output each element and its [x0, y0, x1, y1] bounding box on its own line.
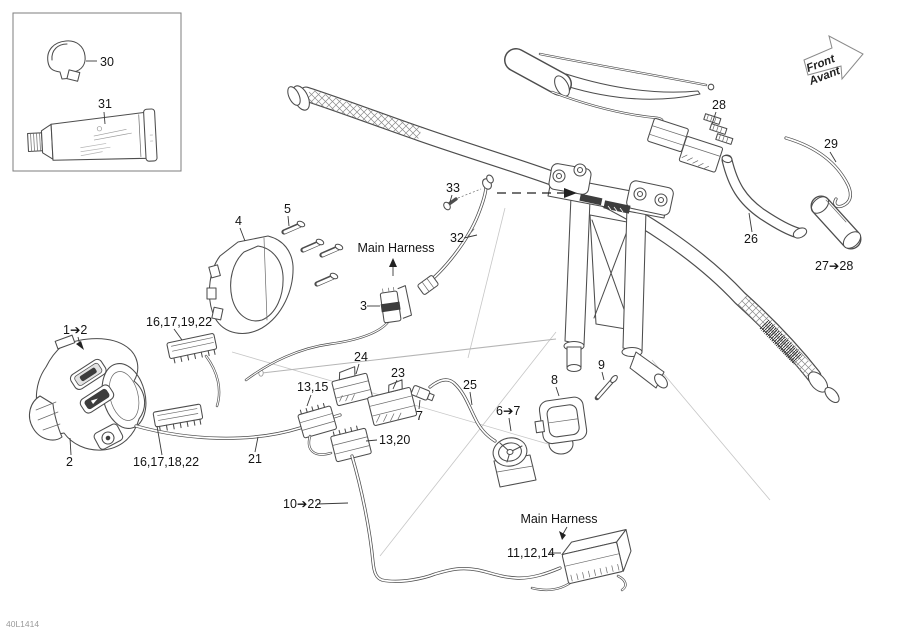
pin-strips-28 — [704, 114, 733, 145]
callout-16-17-18-22: 16,17,18,22 — [133, 455, 199, 469]
diagram-canvas: Main Harness — [0, 0, 900, 636]
callout-16-17-19-22: 16,17,19,22 — [146, 315, 212, 329]
doc-code: 40L1414 — [6, 619, 39, 629]
connector-13-15 — [297, 402, 337, 455]
callout-25: 25 — [463, 378, 477, 392]
callout-1-2: 1➔2 — [63, 323, 87, 337]
main-harness-callout-top: Main Harness — [357, 241, 434, 276]
screw-9 — [597, 374, 619, 398]
connector-24 — [329, 364, 372, 406]
leader-lines — [70, 112, 836, 553]
connector-16-17-19-22 — [167, 333, 219, 406]
main-harness-callout-bottom: Main Harness — [520, 512, 597, 540]
callout-29: 29 — [824, 137, 838, 151]
cap-30 — [48, 41, 85, 81]
dial-switch-6-7 — [490, 435, 536, 487]
connector-16-17-18-22 — [153, 404, 204, 432]
callout-33: 33 — [446, 181, 460, 195]
inset-box: 30 31 — [13, 13, 181, 171]
callout-23: 23 — [391, 366, 405, 380]
install-direction-arrow — [497, 188, 577, 198]
callout-4: 4 — [235, 214, 242, 228]
callout-11-12-14: 11,12,14 — [507, 546, 555, 560]
callout-9: 9 — [598, 358, 605, 372]
callout-6-7: 6➔7 — [496, 404, 520, 418]
callout-2: 2 — [66, 455, 73, 469]
housing-4 — [207, 236, 293, 333]
callout-27-28: 27➔28 — [815, 259, 853, 273]
front-direction-arrow: Front Avant — [802, 36, 863, 88]
callout-13-20: 13,20 — [379, 433, 410, 447]
main-harness-top-label: Main Harness — [357, 241, 434, 255]
callout-10-22: 10➔22 — [283, 497, 321, 511]
callout-3: 3 — [360, 299, 367, 313]
callout-31: 31 — [98, 97, 112, 111]
left-grip — [285, 83, 420, 134]
steering-wiring-harness-diagram: Main Harness — [0, 0, 900, 636]
callout-13-15: 13,15 — [297, 380, 328, 394]
switch-8 — [532, 396, 587, 454]
callout-5: 5 — [284, 202, 291, 216]
callout-8: 8 — [551, 373, 558, 387]
callout-26: 26 — [744, 232, 758, 246]
connector-pair-28 — [647, 114, 733, 173]
callout-30: 30 — [100, 55, 114, 69]
callout-21: 21 — [248, 452, 262, 466]
callout-labels: 28 29 26 27➔28 33 32 3 4 5 1➔2 2 16,17,1… — [63, 98, 853, 560]
brake-lever-assembly — [516, 54, 714, 122]
callout-32: 32 — [450, 231, 464, 245]
connector-23 — [365, 378, 417, 426]
steering-riser — [548, 163, 674, 391]
callout-28: 28 — [712, 98, 726, 112]
switch-assembly — [29, 335, 152, 451]
grip-tube-26 — [721, 154, 808, 240]
right-grip — [742, 300, 842, 405]
callout-24: 24 — [354, 350, 368, 364]
tube-31 — [27, 109, 158, 168]
main-harness-bottom-label: Main Harness — [520, 512, 597, 526]
callout-7: 7 — [416, 409, 423, 423]
